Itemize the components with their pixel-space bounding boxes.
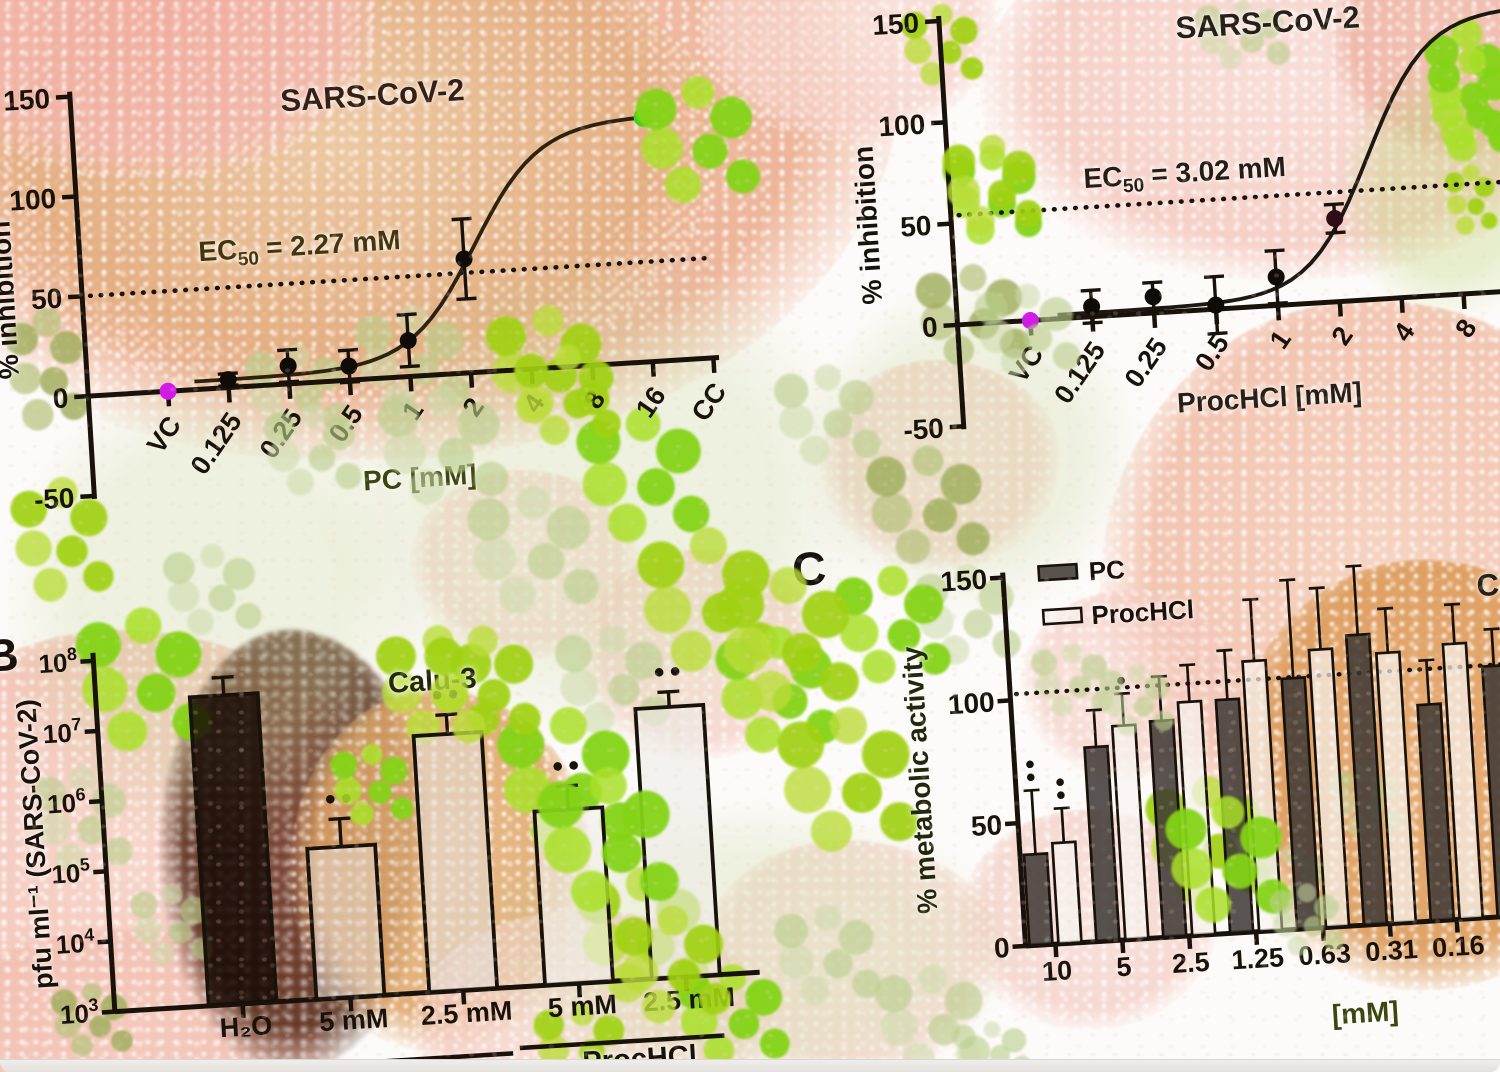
x-category-label: 5 mM	[547, 989, 618, 1023]
x-axis	[958, 283, 1500, 325]
significance-mark	[1056, 778, 1064, 786]
y-tick-label: 50	[970, 809, 1003, 842]
y-tick	[944, 325, 958, 326]
error-bar	[1385, 608, 1388, 652]
x-category-label: 2.5 mM	[643, 982, 736, 1018]
error-bar-cap	[457, 298, 477, 299]
error-bar-cap	[1265, 250, 1285, 251]
y-tick	[85, 731, 98, 732]
x-tick-label: 8	[1449, 314, 1482, 343]
ec50-dotted-line	[90, 258, 711, 296]
x-category-label: 2.5 mM	[420, 995, 513, 1031]
prochcl-dose-response-chart: 150100500-50VC0.1250.250.51248	[817, 0, 1500, 504]
data-point	[1326, 209, 1344, 227]
error-bar-cap	[556, 785, 578, 786]
panel-b-letter: B	[0, 631, 20, 679]
x-tick-label: VC	[141, 411, 187, 459]
x-category-label: 5	[1116, 952, 1133, 983]
significance-mark	[1027, 773, 1035, 781]
figure-canvas: 150100500-50VC0.1250.250.5124816CC 15010…	[0, 0, 1500, 1072]
x-category-label: 0.31	[1364, 934, 1418, 967]
x-tick-label: 0.5	[1189, 329, 1235, 377]
x-tick	[532, 369, 533, 384]
plaque-title: Calu-3	[387, 664, 477, 698]
bar	[1482, 665, 1500, 917]
error-bar	[668, 692, 669, 707]
y-tick	[990, 578, 1003, 579]
y-tick	[98, 941, 111, 942]
y-tick-label: 100	[947, 686, 996, 720]
significance-mark	[326, 795, 335, 804]
x-tick-label: 16	[630, 381, 672, 423]
x-category-label: 0.63	[1297, 938, 1351, 971]
error-bar	[1353, 566, 1357, 635]
pc-dose-response-chart: 150100500-50VC0.1250.250.5124816CC	[0, 30, 761, 594]
x-tick-label: 4	[1387, 317, 1420, 346]
x-tick-label: 1	[1264, 325, 1297, 354]
error-bar-cap	[452, 218, 472, 219]
bar	[1024, 853, 1053, 945]
ec50-sub: 50	[237, 248, 259, 270]
error-bar	[1317, 588, 1321, 649]
y-tick-label: 105	[50, 854, 91, 889]
x-tick-label: 2	[1326, 321, 1359, 350]
y-tick	[68, 296, 82, 297]
y-tick	[950, 426, 964, 427]
y-tick	[998, 700, 1011, 701]
error-bar-cap	[1024, 790, 1040, 791]
x-tick-label: 0.125	[1048, 336, 1111, 409]
ec50-prefix: EC	[197, 234, 238, 267]
x-tick	[592, 365, 593, 380]
error-bar	[1224, 650, 1227, 699]
significance-mark	[1117, 677, 1125, 685]
x-category-label: H₂O	[219, 1010, 273, 1043]
y-tick-label: 50	[899, 210, 932, 243]
legend-swatch-pc	[1038, 564, 1077, 580]
error-bar-cap	[1268, 303, 1288, 304]
bar	[307, 845, 384, 1000]
error-bar	[223, 677, 224, 695]
error-bar-cap	[1216, 650, 1232, 651]
bar	[190, 693, 277, 1006]
ec50-sub: 50	[1122, 175, 1144, 197]
x-tick-label: VC	[1003, 340, 1049, 388]
panel-c-xaxis-label: [mM]	[1331, 997, 1399, 1029]
error-bar-cap	[329, 818, 351, 819]
significance-mark	[655, 668, 664, 677]
y-tick	[89, 801, 102, 802]
x-tick-label: 0.25	[1119, 333, 1173, 393]
data-point	[1021, 311, 1039, 329]
x-tick	[289, 384, 290, 399]
y-tick-label: 100	[9, 183, 58, 217]
x-tick-label: CC	[686, 378, 733, 427]
y-tick	[931, 122, 945, 123]
data-point	[279, 357, 297, 375]
y-tick-label: 108	[37, 644, 78, 679]
y-tick-label: 150	[871, 7, 920, 41]
y-tick-label: 106	[46, 784, 87, 819]
x-tick-label: 0.5	[323, 400, 369, 448]
bar	[1052, 842, 1081, 944]
legend-swatch-prochcl	[1043, 608, 1082, 624]
data-point	[1144, 288, 1162, 306]
significance-mark	[1057, 791, 1065, 799]
error-bar	[1032, 790, 1036, 854]
y-tick	[74, 396, 88, 397]
significance-mark	[342, 794, 351, 803]
error-bar-cap	[1151, 676, 1167, 677]
y-tick-label: -50	[902, 412, 944, 445]
panel-c-letter: C	[791, 544, 828, 593]
x-category-label: 10	[1041, 955, 1073, 987]
y-axis	[1003, 573, 1026, 946]
error-bar-cap	[1142, 282, 1162, 283]
x-tick	[410, 376, 411, 391]
x-tick	[1402, 298, 1403, 313]
y-tick-label: 0	[52, 382, 69, 414]
y-tick-label: 150	[2, 83, 51, 117]
data-point	[159, 382, 177, 400]
error-bar-cap	[1484, 629, 1500, 630]
error-bar-cap	[340, 382, 360, 383]
error-bar	[1250, 599, 1254, 660]
curve-end-point	[633, 107, 653, 127]
card-bottom-edge	[0, 1059, 1500, 1072]
x-tick-label: 2	[457, 392, 490, 421]
error-bar-cap	[1083, 322, 1103, 323]
x-tick-label: 1	[396, 396, 429, 425]
error-bar-cap	[1377, 608, 1393, 609]
error-bar-cap	[1114, 693, 1130, 694]
error-bar-cap	[1345, 566, 1361, 567]
bar	[635, 705, 719, 979]
y-tick	[80, 661, 93, 662]
error-bar-cap	[397, 314, 417, 315]
x-tick	[713, 358, 714, 373]
x-tick	[471, 373, 472, 388]
x-tick-label: 0.125	[185, 407, 248, 480]
error-bar	[1287, 580, 1293, 678]
significance-mark	[553, 762, 562, 771]
significance-mark	[671, 667, 680, 676]
x-tick	[1154, 313, 1155, 328]
error-bar-cap	[1179, 664, 1195, 665]
bar	[534, 807, 613, 985]
x-axis	[88, 358, 719, 397]
error-bar-cap	[1204, 276, 1224, 277]
y-tick-label: 104	[55, 925, 96, 960]
legend-label-pc: PC	[1088, 556, 1126, 584]
x-tick	[653, 362, 654, 377]
y-tick-label: -50	[33, 482, 75, 515]
error-bar-cap	[1324, 204, 1344, 205]
x-category-label: 5 mM	[318, 1003, 389, 1037]
error-bar	[1159, 677, 1162, 721]
error-bar-cap	[277, 349, 297, 350]
error-bar-cap	[1086, 710, 1102, 711]
error-bar-cap	[1242, 599, 1258, 600]
error-bar-cap	[1418, 660, 1434, 661]
error-bar-cap	[400, 366, 420, 367]
data-point	[340, 357, 358, 375]
x-tick-label: 8	[578, 385, 611, 414]
figure-rotated-layer: 150100500-50VC0.1250.250.5124816CC 15010…	[0, 0, 1500, 1072]
error-bar	[339, 819, 341, 847]
significance-mark	[1026, 760, 1034, 768]
panel-c-title-clipped: Ca	[1476, 568, 1500, 601]
x-category-label: 2.5	[1171, 947, 1210, 979]
error-bar-cap	[212, 677, 234, 678]
error-bar	[1122, 694, 1124, 726]
y-tick	[93, 871, 106, 872]
error-bar-cap	[279, 381, 299, 382]
x-tick-label: 4	[517, 389, 550, 418]
error-bar-cap	[1208, 333, 1228, 334]
x-tick	[1464, 294, 1465, 309]
y-tick	[925, 21, 939, 22]
error-bar-cap	[1309, 588, 1325, 589]
y-tick-label: 100	[878, 109, 927, 143]
error-bar-cap	[1279, 579, 1295, 580]
y-tick	[62, 197, 76, 198]
error-bar	[1187, 665, 1189, 702]
ec50-prefix: EC	[1083, 161, 1124, 194]
error-bar-cap	[1444, 604, 1460, 605]
x-category-label: 1.25	[1231, 942, 1285, 975]
x-tick	[1278, 305, 1279, 320]
error-bar-cap	[1144, 310, 1164, 311]
error-bar-cap	[1054, 808, 1070, 809]
error-bar	[446, 715, 447, 734]
metabolic-activity-chart: 1501005001052.51.250.630.310.16	[790, 485, 1500, 1072]
error-bar	[1492, 629, 1494, 666]
error-bar	[567, 786, 568, 810]
legend-label-prochcl: ProcHCl	[1091, 596, 1195, 628]
error-bar-cap	[657, 691, 679, 692]
y-tick	[1005, 823, 1018, 824]
significance-mark	[569, 761, 578, 770]
y-tick-label: 150	[939, 564, 988, 598]
y-axis	[93, 653, 115, 1012]
panel-a-xaxis-label: PC [mM]	[362, 461, 477, 496]
x-category-label: 0.16	[1431, 930, 1485, 963]
y-tick-label: 50	[30, 283, 63, 316]
bar	[414, 732, 498, 992]
y-tick-label: 0	[921, 311, 938, 343]
error-bar-cap	[1326, 232, 1346, 233]
y-tick	[56, 97, 70, 98]
error-bar	[1094, 710, 1096, 747]
error-bar-cap	[338, 350, 358, 351]
y-tick-label: 0	[993, 932, 1010, 964]
x-tick-label: 0.25	[254, 403, 308, 463]
error-bar	[1452, 604, 1454, 643]
x-tick	[1340, 302, 1341, 317]
y-tick	[80, 496, 94, 497]
y-tick	[937, 224, 951, 225]
error-bar	[1062, 808, 1064, 842]
error-bar-cap	[435, 714, 457, 715]
error-bar-cap	[1081, 290, 1101, 291]
y-tick	[102, 1012, 115, 1013]
y-tick-label: 107	[42, 714, 83, 749]
y-tick-label: 103	[59, 995, 100, 1030]
y-tick	[1013, 946, 1026, 947]
x-tick	[229, 388, 230, 403]
